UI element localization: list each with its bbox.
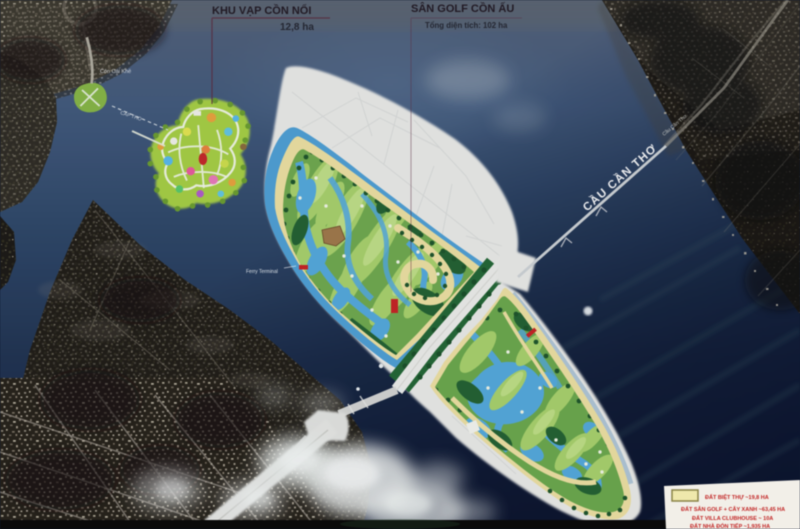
- svg-text:ĐẤT BIỆT THỰ ~19,8 HA: ĐẤT BIỆT THỰ ~19,8 HA: [705, 493, 769, 501]
- svg-text:ĐẤT NHÀ ĐÓN TIẾP ~1,935 HA: ĐẤT NHÀ ĐÓN TIẾP ~1,935 HA: [690, 522, 770, 529]
- svg-text:Tổng diện tích: 102 ha: Tổng diện tích: 102 ha: [425, 21, 508, 30]
- svg-text:ĐẤT VILLA CLUBHOUSE ~ 10A: ĐẤT VILLA CLUBHOUSE ~ 10A: [692, 515, 773, 522]
- svg-text:ĐẤT SÂN GOLF + CÂY XANH ~63,4: ĐẤT SÂN GOLF + CÂY XANH ~63,45 HA: [681, 506, 785, 513]
- svg-text:12,8 ha: 12,8 ha: [280, 22, 314, 33]
- svg-text:Ferry Terminal: Ferry Terminal: [246, 269, 278, 275]
- svg-text:SÂN GOLF CỒN ẤU: SÂN GOLF CỒN ẤU: [411, 2, 514, 15]
- svg-text:KHU VẠP CỒN NỔI: KHU VẠP CỒN NỔI: [212, 4, 311, 17]
